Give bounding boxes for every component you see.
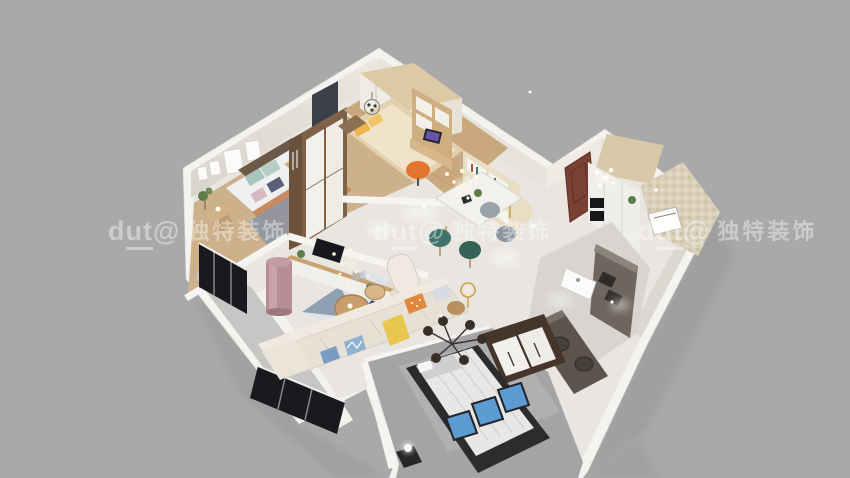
plant: [628, 196, 636, 204]
built-in-oven: [590, 211, 604, 221]
plant: [297, 250, 305, 258]
table-plant: [474, 189, 482, 197]
desk-chair: [406, 161, 430, 179]
render-canvas: dut@ 独特装饰 dut@ 独特装饰 dut@ 独特装饰: [0, 0, 850, 478]
bar-stool: [575, 357, 593, 371]
floorplan-3d-render: [0, 0, 850, 478]
built-in-oven: [590, 198, 604, 208]
faucet: [576, 278, 580, 282]
side-table: [447, 301, 465, 315]
pink-cylinder-cabinet: [266, 257, 292, 316]
